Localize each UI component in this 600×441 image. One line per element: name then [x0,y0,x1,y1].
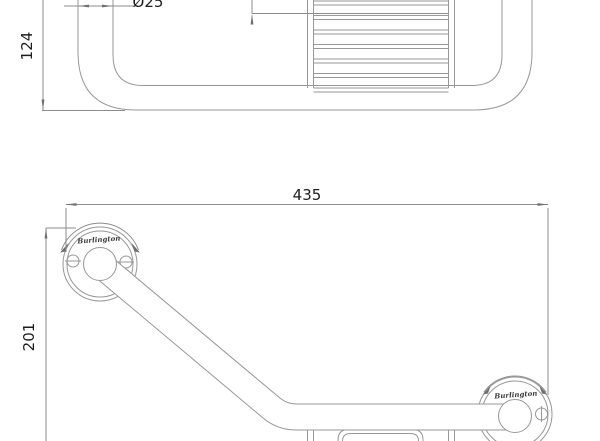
arrowhead-right [102,5,113,8]
basket-rim-inner [343,434,419,441]
arrowhead-left [66,203,77,206]
grab-tube [99,261,506,430]
dim-diameter-label: Ø25 [133,0,164,11]
dimension-depth-124: 124 [18,0,125,111]
dim-height-label: 201 [20,323,38,352]
dim-depth-label: 124 [18,32,36,61]
dim-width-label: 435 [293,186,322,204]
brand-script-right: Burlington [493,389,538,401]
top-view: 124 Ø25 [18,0,532,111]
tube-outline-outer [78,0,532,110]
arrowhead-left [79,5,90,8]
arrowhead-up [45,228,48,239]
arrowhead-right [538,203,549,206]
brand-script-left: Burlington [76,234,121,246]
basket-rim-outer [338,430,423,441]
basket-leader-line [251,0,448,25]
grab-tube-body [99,261,506,430]
basket-slats-plan [314,1,449,92]
dimension-tube-diameter: Ø25 [64,0,163,11]
arrowhead-down [42,100,45,111]
technical-drawing-canvas: 124 Ø25 Bu [0,0,600,441]
right-flange-screw [536,406,548,422]
drawing-svg: 124 Ø25 Bu [0,0,600,441]
front-view: Burlington Burlington [20,186,552,441]
arrowhead-up [251,14,254,25]
left-flange-boss [84,248,117,281]
